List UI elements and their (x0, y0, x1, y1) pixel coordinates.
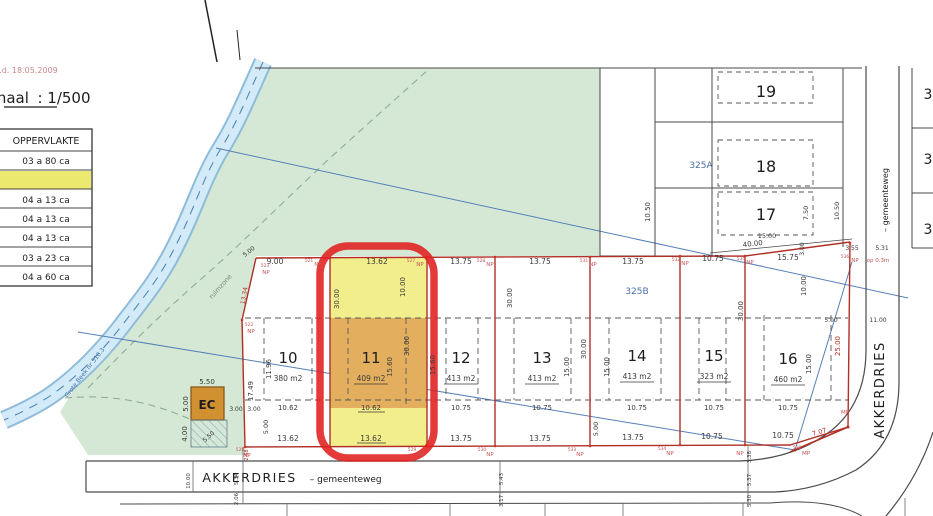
street-name-right: AKKERDRIES (873, 341, 888, 439)
edge-lot-number: 3 (924, 222, 933, 238)
street-type-right: – gemeenteweg (881, 168, 890, 232)
np-marker: NP (416, 452, 424, 458)
table-cell: 04 a 13 ca (22, 234, 69, 244)
dim-label: 5.00 (262, 420, 270, 434)
dim-label: 3.17 (499, 494, 505, 507)
table-cell: 04 a 13 ca (22, 215, 69, 225)
dim-label: 13.75 (529, 257, 551, 266)
marker-id: 521 (305, 258, 314, 264)
np-marker: NP (666, 451, 674, 457)
scale-value: : 1/500 (37, 89, 90, 107)
np-marker: NP (746, 260, 754, 266)
dim-label: 3.38 (747, 450, 753, 463)
dim-label: 10.62 (361, 404, 381, 412)
marker-id: 532 (672, 257, 681, 263)
table-cell: 03 a 80 ca (22, 157, 69, 167)
marker-id: 534 (658, 446, 667, 452)
np-marker: NP (262, 270, 270, 276)
table-cell: 04 a 13 ca (22, 196, 69, 206)
lot-number: 13 (532, 349, 551, 367)
dim-label: 25.00 (834, 336, 842, 356)
lot-number: 15 (704, 347, 723, 365)
np-marker: NP (486, 452, 494, 458)
dim-label: 13.75 (529, 434, 551, 443)
dim-label: 13.62 (360, 434, 382, 443)
lot-number: 19 (756, 82, 776, 101)
marker-id: 533 (568, 447, 577, 453)
dim-label: 5.50 (199, 378, 215, 386)
marker-id: 530 (478, 447, 487, 453)
dim-label: 15.60 (386, 357, 394, 377)
dim-label: 13.75 (450, 434, 472, 443)
dim-label: 10.75 (778, 404, 798, 412)
lot-area: 409 m2 (357, 374, 386, 383)
marker-id: 522 (245, 322, 254, 328)
dim-label: 40.00 (742, 239, 763, 249)
dim-label: 10.75 (702, 254, 724, 263)
dim-label: 10.50 (833, 202, 841, 221)
cadastral-ref: 325B (625, 287, 648, 297)
np-marker: NP (576, 452, 584, 458)
dim-label: 10.50 (644, 202, 652, 222)
dim-label: 10.75 (704, 404, 724, 412)
lot-area: 460 m2 (774, 375, 803, 384)
dim-label: 5.00 (592, 422, 600, 436)
area-table: OPPERVLAKTE 03 a 80 ca 04 a 13 ca 04 a 1… (0, 129, 92, 286)
dim-label: 30.00 (403, 336, 411, 356)
marker-id: 527 (407, 258, 416, 264)
dim-label: 5.43 (499, 472, 505, 485)
table-header: OPPERVLAKTE (13, 136, 80, 147)
dim-label: 30.00 (580, 339, 588, 359)
np-marker: NP (736, 451, 744, 457)
dim-label: 5.37 (747, 473, 753, 486)
dim-label: 15.60 (429, 355, 437, 375)
edge-lot-number: 3 (924, 87, 933, 103)
marker-id: 529 (408, 447, 417, 453)
np-marker: NP (486, 262, 494, 268)
dim-label: 15.75 (777, 253, 799, 262)
dim-label: 13.75 (450, 257, 472, 266)
cadastral-ref: 325A (689, 161, 713, 171)
dim-label: 10.75 (627, 404, 647, 412)
dim-label: 4.00 (181, 426, 189, 442)
lot-area: 413 m2 (528, 374, 557, 383)
lot-area: 323 m2 (700, 372, 729, 381)
lot-number: 16 (778, 350, 797, 368)
dim-label: 13.62 (366, 257, 388, 266)
dim-label: 13.75 (622, 257, 644, 266)
marker-id: 536 (841, 254, 850, 260)
lot-number: 10 (278, 349, 297, 367)
lot-area: 413 m2 (623, 372, 652, 381)
dim-label: 30.00 (737, 301, 745, 321)
marker-id: 538 (793, 445, 802, 451)
dim-label: 11.96 (265, 358, 273, 379)
dim-label: 2.06 (234, 492, 240, 505)
dim-label: 15.00 (603, 357, 611, 377)
cadastral-plan: 13004/60385.7 d.d. 18.05.2009 Schaal : 1… (0, 0, 933, 516)
dim-label: 7.50 (802, 206, 810, 220)
np-marker: NP (416, 262, 424, 268)
dim-label: 3.55 (845, 245, 859, 252)
lot-number: 14 (627, 347, 646, 365)
ec-label: EC (198, 398, 215, 412)
dim-label: 5.31 (875, 245, 889, 252)
scale-label: Schaal (0, 89, 29, 107)
mp-marker: MP (841, 410, 850, 416)
dim-label: 5.00 (824, 317, 838, 324)
dim-label: 3.00 (229, 406, 243, 413)
lot-number: 11 (361, 349, 380, 367)
np-marker: NP (681, 261, 689, 267)
marker-id: 535 (737, 256, 746, 262)
np-marker: NP (589, 262, 597, 268)
table-row-highlight (0, 171, 91, 189)
dim-label: 5.00 (182, 396, 190, 412)
reference-number: 13004/60385.7 d.d. 18.05.2009 (0, 66, 58, 75)
dim-label: 10.75 (772, 431, 794, 440)
dim-label: 15.00 (805, 354, 813, 374)
dim-label: 3.00 (247, 406, 261, 413)
dim-label: 10.75 (532, 404, 552, 412)
lot-area: 380 m2 (274, 374, 303, 383)
dim-label: 15.00 (563, 357, 571, 377)
dim-label: 10.75 (451, 404, 471, 412)
dim-label: 10.00 (399, 277, 407, 297)
street-name-bottom: AKKERDRIES – gemeenteweg (202, 467, 381, 486)
dim-label: 3.00 (799, 242, 806, 256)
dim-label: 10.75 (701, 432, 723, 441)
dim-label: 13.75 (622, 433, 644, 442)
dim-label: 30.00 (506, 288, 514, 308)
edge-lot-number: 3 (924, 152, 933, 168)
np-marker: NP (247, 329, 255, 335)
marker-id: 523 (261, 263, 270, 269)
np-marker: NP (851, 258, 859, 264)
lot-area: 413 m2 (447, 374, 476, 383)
dim-label: 30.00 (333, 289, 341, 309)
dim-label: 13.62 (277, 434, 299, 443)
dim-label: 10.00 (800, 276, 808, 296)
dim-label: 10.00 (186, 473, 192, 489)
lot-number: 18 (756, 157, 776, 176)
dim-label: 17.49 (247, 381, 255, 401)
lot-number: 12 (451, 349, 470, 367)
np-marker: NP (314, 262, 322, 268)
lot-number: 17 (756, 205, 776, 224)
marker-id: 528 (477, 258, 486, 264)
scan-marks (205, 0, 240, 62)
mp-marker: MP (802, 451, 811, 457)
np-note: op 0.3m (867, 258, 890, 264)
dim-label: 11.00 (869, 317, 886, 324)
table-cell: 04 a 60 ca (22, 273, 69, 283)
marker-id: 531 (580, 258, 589, 264)
dim-label: 10.62 (278, 404, 298, 412)
dim-label: 5.30 (747, 494, 753, 507)
dim-label: 2.68 (244, 449, 250, 460)
table-cell: 03 a 23 ca (22, 254, 69, 264)
